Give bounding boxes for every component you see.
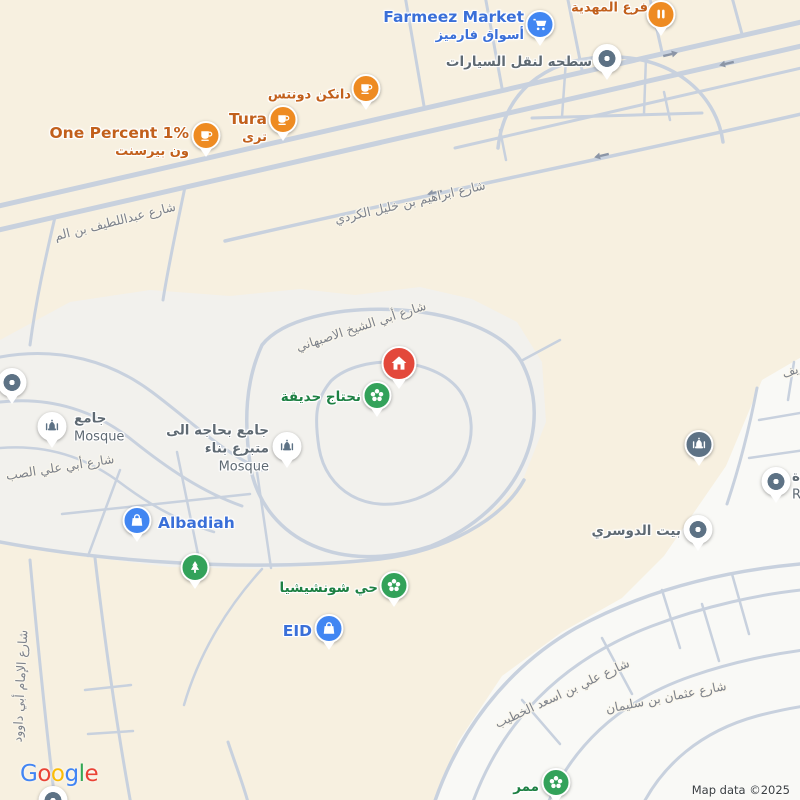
dot-icon — [690, 521, 707, 538]
store-icon — [654, 7, 669, 22]
one-percent-cafe-pin[interactable] — [192, 121, 221, 157]
google-logo-letter: o — [37, 761, 51, 787]
google-logo-letter: g — [64, 761, 78, 787]
mamar-walkway-label[interactable]: ممر — [513, 779, 539, 797]
poi-dot-east-label-line: ة — [792, 469, 800, 487]
albadiah-pin[interactable] — [123, 506, 152, 542]
map-canvas[interactable] — [0, 0, 800, 800]
car-towing-pin[interactable] — [593, 44, 622, 80]
need-garden-label[interactable]: نحتاج حديقة — [281, 389, 361, 407]
albadiah-label-line: Albadiah — [158, 513, 235, 533]
shopping-bag-icon — [130, 513, 145, 528]
tura-cafe-label-line: ترى — [229, 130, 267, 147]
dunkin-donuts-label[interactable]: دانكن دونتس — [268, 86, 351, 103]
house-icon — [390, 354, 409, 373]
poi-dot-east-pin[interactable] — [762, 467, 791, 503]
mahdia-branch-pin[interactable] — [647, 0, 676, 36]
google-logo-letter: G — [20, 761, 37, 787]
mosque-icon — [280, 439, 295, 454]
one-percent-cafe-label-line: One Percent 1% — [50, 123, 190, 143]
dosari-house-pin[interactable] — [684, 515, 713, 551]
tree-icon — [188, 560, 203, 575]
mosque-needs-donor-pin[interactable] — [273, 432, 302, 468]
mosque-needs-donor-label-line: Mosque — [166, 458, 269, 475]
mosque-west-label-line: Mosque — [74, 428, 124, 445]
tura-cafe-label-line: Tura — [229, 109, 267, 129]
mosque-icon — [692, 437, 707, 452]
coffee-cup-icon — [359, 81, 374, 96]
car-towing-label[interactable]: سطحه لنقل السيارات — [446, 54, 592, 72]
mahdia-branch-label-line: فرع المهدية — [571, 0, 648, 17]
eid-store-label-line: EID — [283, 621, 312, 641]
dosari-house-label[interactable]: بيت الدوسري — [591, 523, 681, 541]
shopping-cart-icon — [533, 17, 548, 32]
poi-dot-east-label-line: R — [792, 486, 800, 503]
need-garden-label-line: نحتاج حديقة — [281, 389, 361, 407]
mamar-walkway-label-line: ممر — [513, 779, 539, 797]
flower-icon — [549, 775, 564, 790]
need-garden-pin[interactable] — [363, 381, 392, 417]
car-towing-label-line: سطحه لنقل السيارات — [446, 54, 592, 72]
map-container[interactable]: شارع عبداللطيف بن المشارع ابراهيم بن خلي… — [0, 0, 800, 800]
dot-icon — [768, 473, 785, 490]
map-data-attribution: Map data ©2025 — [692, 783, 790, 797]
google-logo[interactable]: Google — [20, 761, 98, 787]
flower-icon — [370, 388, 385, 403]
albadiah-label[interactable]: Albadiah — [158, 513, 235, 533]
coffee-cup-icon — [276, 112, 291, 127]
one-percent-cafe-label-line: ون بيرسنت — [50, 144, 190, 161]
mosque-west-pin[interactable] — [38, 412, 67, 448]
dunkin-donuts-label-line: دانكن دونتس — [268, 86, 351, 103]
dot-icon — [599, 50, 616, 67]
dot-icon — [45, 792, 62, 800]
eid-store-label[interactable]: EID — [283, 621, 312, 641]
mosque-west-label[interactable]: جامعMosque — [74, 411, 124, 446]
dunkin-donuts-pin[interactable] — [352, 74, 381, 110]
google-logo-letter: o — [51, 761, 65, 787]
farmeez-market-label-line: Farmeez Market — [383, 7, 524, 27]
eid-store-pin[interactable] — [315, 614, 344, 650]
shopping-bag-icon — [322, 621, 337, 636]
shunshisha-district-pin[interactable] — [380, 571, 409, 607]
one-percent-cafe-label[interactable]: One Percent 1%ون بيرسنت — [50, 123, 190, 161]
tura-cafe-pin[interactable] — [269, 105, 298, 141]
coffee-cup-icon — [199, 128, 214, 143]
mosque-needs-donor-label-line: جامع بحاجه الى — [166, 423, 269, 441]
mosque-east-pin[interactable] — [685, 430, 714, 466]
poi-dot-east-label[interactable]: ةR — [792, 469, 800, 504]
mamar-walkway-pin[interactable] — [542, 768, 571, 800]
shunshisha-district-label-line: حي شونشيشيا — [280, 580, 378, 598]
flower-icon — [387, 578, 402, 593]
mosque-icon — [45, 419, 60, 434]
park-tree-pin[interactable] — [181, 553, 210, 589]
farmeez-market-label[interactable]: Farmeez Marketأسواق فارميز — [383, 7, 524, 45]
poi-dot-southwest-pin[interactable] — [39, 786, 68, 800]
mosque-west-label-line: جامع — [74, 411, 124, 429]
tura-cafe-label[interactable]: Turaترى — [229, 109, 267, 147]
dot-icon — [4, 374, 21, 391]
mosque-needs-donor-label[interactable]: جامع بحاجه الىمتبرع بناءMosque — [166, 423, 269, 476]
shunshisha-district-label[interactable]: حي شونشيشيا — [280, 580, 378, 598]
poi-dot-west-pin[interactable] — [0, 368, 27, 404]
mahdia-branch-label[interactable]: فرع المهدية — [571, 0, 648, 17]
google-logo-letter: e — [84, 761, 98, 787]
farmeez-market-pin[interactable] — [526, 10, 555, 46]
dosari-house-label-line: بيت الدوسري — [591, 523, 681, 541]
mosque-needs-donor-label-line: متبرع بناء — [166, 440, 269, 458]
farmeez-market-label-line: أسواق فارميز — [383, 28, 524, 45]
